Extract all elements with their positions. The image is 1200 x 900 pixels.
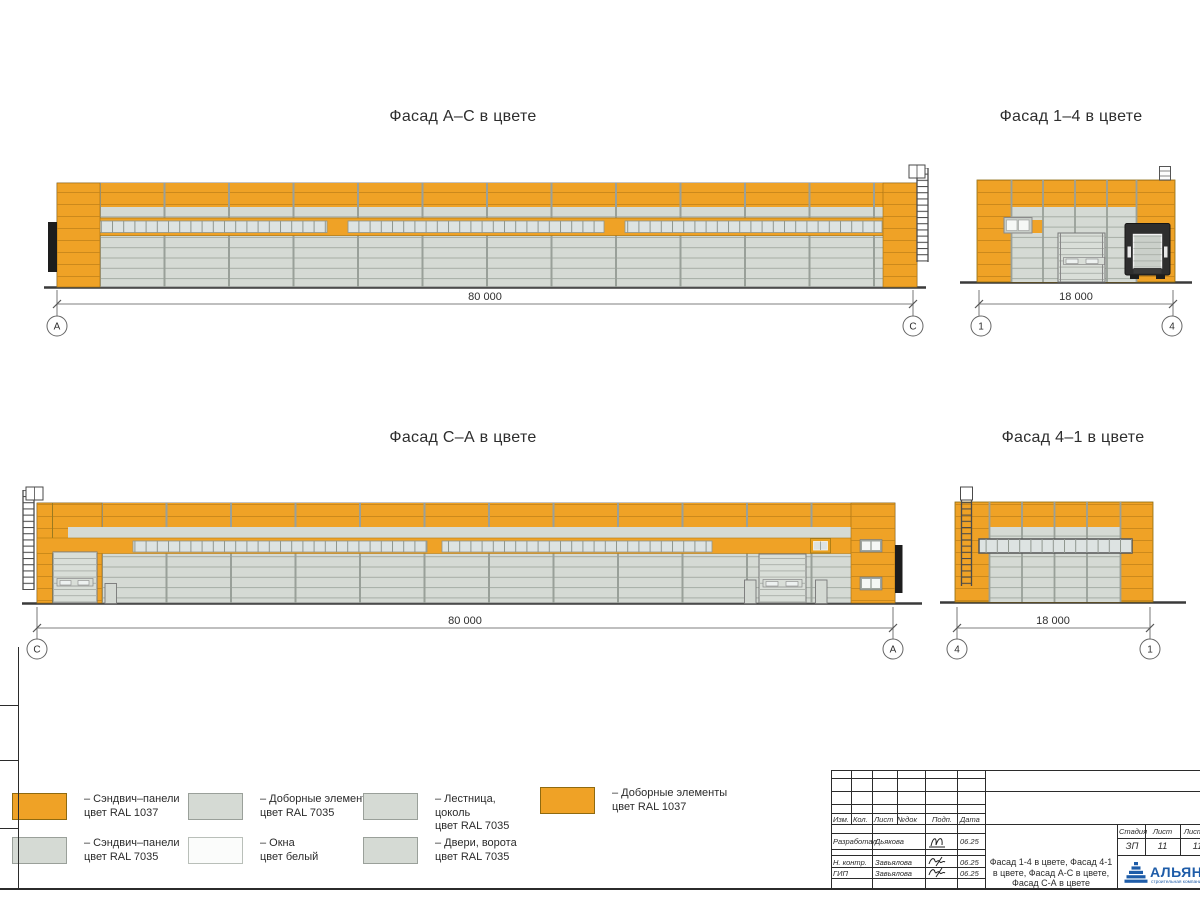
rev-header-kol: Кол.: [853, 815, 868, 824]
signature: [927, 834, 956, 849]
row-date: 06.25: [960, 837, 979, 846]
facade-4-1-title: Фасад 4–1 в цвете: [1002, 429, 1145, 446]
legend-label: – Сэндвич–панели: [84, 837, 180, 849]
axis-label: А: [890, 645, 897, 656]
dock-shelter: [1125, 224, 1170, 280]
rev-header-izm: Изм.: [833, 815, 849, 824]
swatch-gray: [12, 837, 67, 864]
legend-label: – Сэндвич–панели: [84, 793, 180, 805]
roof-ladder: [961, 487, 973, 586]
personnel-door: [745, 580, 757, 604]
legend-label: – Доборные элементы: [260, 793, 375, 805]
legend-item: – Лестница, цоколь цвет RAL 7035: [363, 793, 509, 834]
row-name: Завьялова: [875, 858, 912, 867]
signature: [927, 856, 956, 867]
sectional-gate: [53, 552, 97, 603]
window-strip: [81, 221, 882, 233]
company-logo-icon: [1124, 860, 1148, 885]
legend-item: – Сэндвич–панели цвет RAL 1037: [12, 793, 180, 820]
sectional-gate: [1058, 233, 1105, 282]
facade-1-4: Фасад 1–4 в цвете: [960, 108, 1192, 336]
axis-label: 4: [954, 645, 960, 656]
swatch-orange: [540, 787, 595, 814]
personnel-door: [816, 580, 828, 604]
facade-drawings: Фасад А–С в цвете: [0, 0, 1200, 760]
axis-label: С: [33, 645, 40, 656]
swatch-white: [188, 837, 243, 864]
facade-a-c: Фасад А–С в цвете: [44, 108, 928, 336]
axis-label: 4: [1169, 322, 1175, 333]
stage-header: Стадия: [1119, 827, 1145, 836]
facade-1-4-title: Фасад 1–4 в цвете: [1000, 108, 1143, 125]
axis-label: С: [909, 322, 916, 333]
sheets-value: 11: [1181, 841, 1200, 852]
dimension-label: 18 000: [1036, 615, 1070, 627]
legend-item: – Доборные элементы цвет RAL 7035: [188, 793, 375, 820]
row-name: Дьякова: [875, 837, 904, 846]
axis-label: 1: [1147, 645, 1153, 656]
swatch-orange: [12, 793, 67, 820]
dark-wall-element: [48, 222, 57, 272]
axis-label: А: [54, 322, 61, 333]
dark-wall-element: [895, 545, 903, 593]
stage-value: ЗП: [1119, 841, 1145, 852]
swatch-gray: [363, 793, 418, 820]
legend-item: – Доборные элементы цвет RAL 1037: [540, 787, 727, 814]
row-name: Завьялова: [875, 869, 912, 878]
legend-label: – Двери, ворота: [435, 837, 517, 849]
window-small: [811, 539, 831, 554]
axis-label: 1: [978, 322, 984, 333]
legend-item: – Сэндвич–панели цвет RAL 7035: [12, 837, 180, 864]
rev-header-ndok: №док: [897, 815, 917, 824]
window-strip: [979, 539, 1132, 553]
row-role: ГИП: [833, 869, 848, 878]
row-role: Н. контр.: [833, 858, 867, 867]
sheet-title: Фасад 1-4 в цвете, Фасад 4-1 в цвете, Фа…: [988, 857, 1114, 887]
facade-c-a: Фасад С–А в цвете: [22, 429, 922, 659]
company-name: АЛЬЯНС: [1150, 864, 1200, 880]
sheet-header: Лист: [1146, 827, 1179, 836]
facade-a-c-title: Фасад А–С в цвете: [389, 108, 536, 125]
dimension-label: 80 000: [448, 615, 482, 627]
window-strip: [133, 541, 712, 552]
swatch-gray: [188, 793, 243, 820]
drawing-sheet: Фасад А–С в цвете: [0, 0, 1200, 900]
rev-header-data: Дата: [960, 815, 980, 824]
sheet-value: 11: [1146, 841, 1179, 852]
window-small: [1004, 218, 1032, 234]
company-subtitle: строительная компания: [1151, 880, 1200, 885]
rev-header-list: Лист: [874, 815, 893, 824]
row-role: Разработал: [833, 837, 877, 846]
personnel-door: [105, 584, 117, 604]
sheets-header: Листов: [1181, 827, 1200, 836]
dimension-label: 80 000: [468, 291, 502, 303]
dimension-label: 18 000: [1059, 291, 1093, 303]
facade-4-1: Фасад 4–1 в цвете 18 000 4 1: [940, 429, 1186, 659]
swatch-gray: [363, 837, 418, 864]
roof-box: [1160, 167, 1171, 181]
legend-item: – Окна цвет белый: [188, 837, 318, 864]
legend-label: – Лестница,: [435, 793, 496, 805]
sectional-gate: [759, 554, 806, 603]
legend-label: – Доборные элементы: [612, 787, 727, 799]
rev-header-podp: Подп.: [932, 815, 952, 824]
legend-item: – Двери, ворота цвет RAL 7035: [363, 837, 517, 864]
row-date: 06.25: [960, 858, 979, 867]
signature: [927, 867, 956, 878]
facade-c-a-title: Фасад С–А в цвете: [389, 429, 536, 446]
legend-label: – Окна: [260, 837, 295, 849]
row-date: 06.25: [960, 869, 979, 878]
